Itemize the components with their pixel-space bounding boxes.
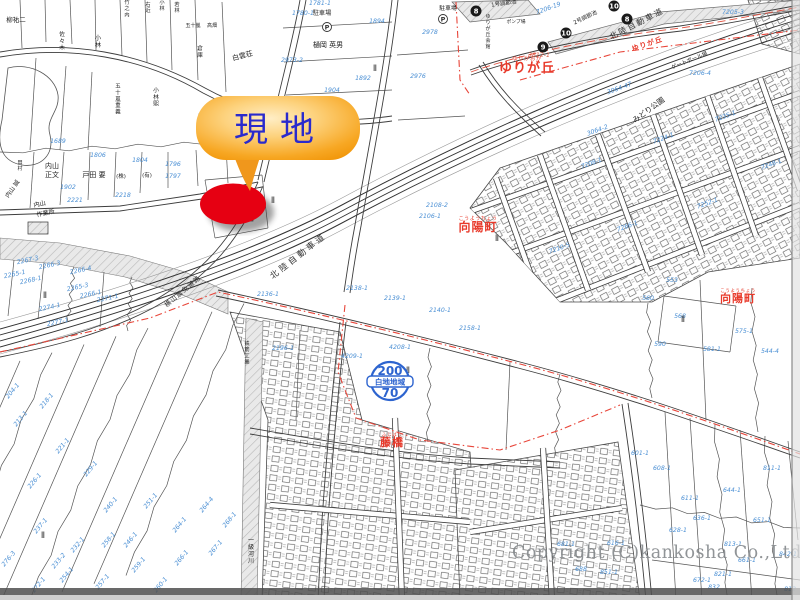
- parcel-number: 1780-1: [292, 10, 314, 17]
- zoning-stamp-bottom: 70: [382, 386, 399, 400]
- cadastral-map: よこやま横山ゆりがおかゆりが丘ゆりが丘こうようちょう向陽町こうようちょう向陽町ふ…: [0, 0, 800, 600]
- parcel-number: 851-1: [600, 569, 618, 576]
- parcel-number: 2138-1: [346, 285, 368, 292]
- map-label-vertical: 一級河川: [248, 537, 254, 565]
- parcel-number: 644-1: [723, 487, 741, 494]
- town-label: 向陽町: [720, 291, 756, 305]
- parcel-number: 590: [654, 341, 666, 348]
- facility-label: (有): [142, 171, 152, 179]
- parcel-number: 2218: [115, 192, 131, 199]
- map-label-vertical: 右近: [145, 0, 150, 14]
- parcel-number: 651-1: [753, 517, 771, 524]
- facility-label: ポンプ場: [506, 18, 525, 25]
- map-label-vertical: 倉庫: [197, 44, 203, 59]
- parcel-number: 2973-2: [281, 57, 303, 64]
- parcel-number: 7206-4: [689, 70, 711, 77]
- field-mark: Ⅱ: [681, 315, 685, 325]
- map-label-vertical: 若林: [174, 0, 180, 14]
- parcel-number: 608-1: [653, 465, 671, 472]
- route-number-text: 8: [474, 8, 479, 16]
- facility-label: 五十嵐: [185, 22, 200, 29]
- facility-label: 駐車場: [313, 9, 332, 17]
- facility-label: 正文: [45, 170, 59, 179]
- map-label-vertical: 小林熙: [153, 86, 159, 108]
- bottom-edge-bar: [0, 588, 800, 595]
- map-label-vertical: 鉄筋工業: [244, 339, 249, 366]
- parcel-number: 581-1: [703, 346, 721, 353]
- pond-outline-top-left: [0, 67, 58, 166]
- parcel-number: 688: [575, 566, 587, 573]
- parcel-number: 601-1: [631, 450, 649, 457]
- map-label-vertical: 小林: [159, 0, 165, 12]
- parking-icon-letter: P: [441, 16, 446, 24]
- copyright-text: Copyright (C)kankosha Co.,Ltd.: [512, 543, 800, 563]
- route-number-text: 9: [541, 44, 546, 52]
- parking-icon-letter: P: [325, 24, 330, 32]
- field-mark: Ⅱ: [43, 291, 47, 301]
- parcel-number: 560: [642, 295, 654, 302]
- facility-label: 柳祐二: [6, 15, 26, 24]
- map-label-vertical: 五十嵐重義: [115, 83, 121, 116]
- town-label: ゆりが丘: [499, 60, 555, 76]
- parcel-number: 2106-1: [419, 213, 441, 220]
- parcel-number: 811-1: [763, 465, 781, 472]
- map-label-vertical: 佐々木: [59, 30, 65, 52]
- bottom-edge-light: [0, 595, 800, 600]
- parcel-number: 2978: [422, 29, 438, 36]
- route-number-text: 8: [625, 16, 630, 24]
- parcel-number: 611-1: [681, 495, 699, 502]
- route-number-text: 10: [609, 3, 619, 11]
- parcel-number: 553: [666, 277, 678, 284]
- parcel-number: 1902: [60, 184, 76, 191]
- parcel-number: 821-1: [714, 571, 732, 578]
- parcel-number: 575-1: [735, 328, 753, 335]
- parcel-number: 2196-1: [272, 345, 294, 352]
- parcel-number: 628-1: [669, 527, 687, 534]
- parcel-number: 2139-1: [384, 295, 406, 302]
- parcel-number: 3812-1: [528, 52, 550, 59]
- town-label: 藤橋: [380, 435, 404, 449]
- facility-label: 戸田 要: [82, 171, 105, 179]
- field-mark: Ⅱ: [373, 64, 377, 74]
- field-mark: Ⅱ: [495, 234, 499, 244]
- map-label-vertical: ゆりが丘会館: [485, 14, 490, 50]
- right-edge-band: [792, 0, 800, 600]
- site-marker-ellipse: [200, 184, 266, 225]
- parcel-number: 672-1: [693, 577, 711, 584]
- parcel-number: 1797: [165, 173, 181, 180]
- map-label-vertical: 小林: [95, 34, 102, 49]
- parcel-number: 2221: [67, 197, 83, 204]
- town-label: 向陽町: [458, 219, 497, 234]
- parcel-number: 1689: [50, 138, 66, 145]
- parcel-number: 1904: [324, 87, 340, 94]
- building-footprint: [28, 222, 48, 234]
- parcel-number: 7205-3: [722, 9, 744, 16]
- facility-label: 高畑: [207, 22, 217, 29]
- parcel-number: 1894: [369, 18, 385, 25]
- parcel-number: 1806: [90, 152, 106, 159]
- facility-label: 駐車場: [439, 4, 457, 12]
- map-label-vertical: 竹之内: [124, 0, 129, 18]
- facility-label: 内山: [45, 161, 59, 170]
- parcel-number: 636-1: [693, 515, 711, 522]
- parcel-number: 544-4: [761, 348, 779, 355]
- parcel-number: 4208-1: [389, 344, 411, 351]
- parcel-number: 2976: [410, 73, 426, 80]
- parcel-number: 2158-1: [459, 325, 481, 332]
- parcel-number: 2140-1: [429, 307, 451, 314]
- facility-label: (株): [116, 172, 126, 180]
- callout-text: 現地: [234, 110, 326, 150]
- parcel-number: 1804: [132, 157, 148, 164]
- map-label-vertical: 田村: [17, 160, 22, 172]
- field-mark: Ⅱ: [41, 531, 45, 541]
- facility-label: 樋岡 英男: [313, 40, 343, 49]
- parcel-number: 2136-1: [257, 291, 279, 298]
- route-number-text: 10: [561, 30, 571, 38]
- map-viewport: よこやま横山ゆりがおかゆりが丘ゆりが丘こうようちょう向陽町こうようちょう向陽町ふ…: [0, 0, 800, 600]
- parcel-number: 1781-1: [309, 0, 331, 7]
- parcel-number: 2108-2: [426, 202, 448, 209]
- parcel-number: 1796: [165, 161, 181, 168]
- parcel-number: 1892: [355, 75, 371, 82]
- parcel-number: 4209-1: [341, 353, 363, 360]
